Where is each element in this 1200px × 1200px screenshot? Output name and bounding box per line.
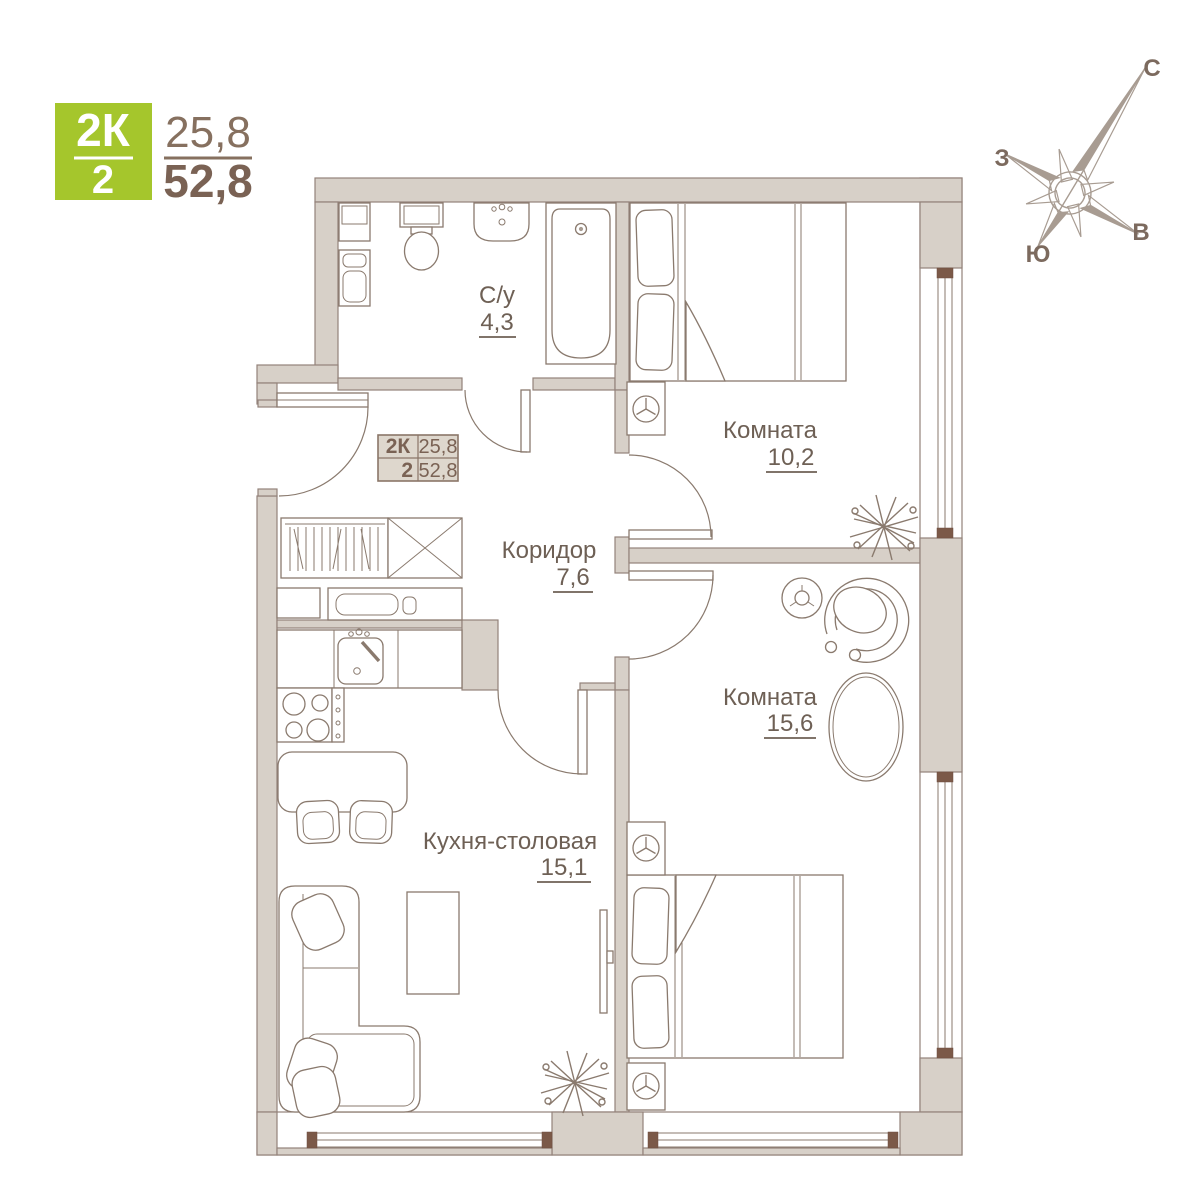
bathroom-label: С/у xyxy=(479,282,515,309)
bedroom-small-furniture xyxy=(627,203,918,560)
badge-type: 2К xyxy=(76,104,131,156)
bottom-wall-pier xyxy=(552,1112,643,1155)
bathroom-sink xyxy=(474,203,529,241)
corridor-label: Коридор xyxy=(502,537,597,564)
hall-cabinet-small xyxy=(277,588,320,618)
window-bedroom-large-east xyxy=(937,772,953,1058)
bedroom-small-door xyxy=(629,455,712,539)
stove xyxy=(277,688,344,742)
bottom-left-corner xyxy=(257,1112,277,1155)
bedrooms-divider-wall xyxy=(629,548,920,563)
bathroom-south-wall-left xyxy=(338,378,462,390)
right-wall-lower xyxy=(920,1058,962,1112)
bathroom-door xyxy=(465,390,530,452)
pillow xyxy=(636,293,675,370)
badge-living-area: 25,8 xyxy=(165,108,251,157)
badge-total-area: 52,8 xyxy=(163,155,253,207)
kitchen-door-jamb xyxy=(580,683,615,690)
entry-door xyxy=(277,393,368,496)
nightstand-small-room xyxy=(627,382,665,435)
compass-east-arrow xyxy=(1081,202,1139,241)
shoe-bench xyxy=(328,588,462,620)
compass-north-label: С xyxy=(1143,55,1160,82)
left-upper-wall xyxy=(315,202,338,378)
right-wall-upper xyxy=(920,202,962,268)
storage-cabinet xyxy=(388,518,462,578)
coffee-table xyxy=(407,892,459,994)
kitchen-door xyxy=(498,690,587,774)
right-wall-middle xyxy=(920,538,962,772)
bottom-right-corner xyxy=(900,1112,962,1155)
sofa xyxy=(279,886,420,1120)
kitchen-wall-column xyxy=(462,620,498,690)
compass-north-arrow xyxy=(1073,63,1145,175)
corridor-south-wall xyxy=(277,620,462,628)
kitchen-area: 15,1 xyxy=(541,854,588,881)
bottom-sill-strip-right xyxy=(643,1148,900,1155)
corridor-furniture xyxy=(277,518,462,620)
spine-wall-corridor-b xyxy=(615,657,629,690)
pillow xyxy=(636,209,675,286)
bathtub xyxy=(546,203,616,364)
nightstand-large-room-1 xyxy=(627,822,665,875)
nightstand-large-room-2 xyxy=(627,1063,665,1110)
floor-lamp xyxy=(782,578,822,618)
bed-large xyxy=(627,875,843,1058)
pillow xyxy=(632,887,670,964)
window-bedroom-large-south xyxy=(648,1132,898,1148)
badge-rooms: 2 xyxy=(92,158,114,202)
bedroom-large-door xyxy=(629,571,713,659)
bottom-sill-strip-left xyxy=(277,1148,552,1155)
corridor-area: 7,6 xyxy=(556,564,589,591)
spine-wall-upper xyxy=(615,202,629,390)
plan-tag-total: 52,8 xyxy=(419,460,458,482)
bar-chair-2 xyxy=(349,800,392,843)
left-exterior-wall xyxy=(257,496,277,1112)
window-bedroom-small xyxy=(937,268,953,538)
bedroom-large-furniture xyxy=(627,578,909,1110)
tv xyxy=(600,910,613,1013)
entry-doorstop-bottom xyxy=(258,489,277,496)
compass-south-label: Ю xyxy=(1026,241,1051,268)
compass-rose: С З В Ю xyxy=(973,29,1200,288)
compass-east-label: В xyxy=(1132,219,1149,246)
pillow xyxy=(632,975,669,1048)
window-kitchen xyxy=(307,1132,552,1148)
top-exterior-wall xyxy=(315,178,962,202)
bathroom-cabinet xyxy=(339,250,370,306)
toilet xyxy=(400,203,443,270)
compass-west-label: З xyxy=(994,145,1009,172)
plan-tag-rooms: 2 xyxy=(401,459,413,482)
kitchen-label: Кухня-столовая xyxy=(423,828,597,855)
bedroom-large-label: Комната xyxy=(723,684,818,711)
bedroom-small-label: Комната xyxy=(723,417,818,444)
bathroom-area: 4,3 xyxy=(480,309,513,336)
armchair xyxy=(825,578,909,662)
plan-tag-living: 25,8 xyxy=(419,436,458,458)
washing-machine xyxy=(339,203,370,241)
left-step-wall xyxy=(257,365,338,383)
apartment-badge: 2К 2 25,8 52,8 xyxy=(55,103,253,207)
plan-tag-type: 2К xyxy=(386,435,411,458)
plant-kitchen xyxy=(541,1051,609,1116)
bed-small xyxy=(630,203,846,381)
bathroom-fixtures xyxy=(339,203,616,364)
entry-doorstop-top xyxy=(258,400,277,407)
floorplan-canvas: 2К 2 25,8 52,8 С З В Ю xyxy=(0,0,1200,1200)
bedroom-large-area: 15,6 xyxy=(767,710,814,737)
plan-tag: 2К 25,8 2 52,8 xyxy=(378,435,458,482)
bedroom-small-area: 10,2 xyxy=(768,444,815,471)
oval-rug xyxy=(829,673,903,781)
wardrobe xyxy=(281,518,388,578)
spine-wall-pier xyxy=(615,537,629,573)
bar-chair-1 xyxy=(296,800,340,844)
floorplan-page: 2К 2 25,8 52,8 С З В Ю xyxy=(0,0,1200,1200)
bathroom-south-wall-right xyxy=(533,378,615,390)
compass-west-arrow xyxy=(1005,147,1059,184)
